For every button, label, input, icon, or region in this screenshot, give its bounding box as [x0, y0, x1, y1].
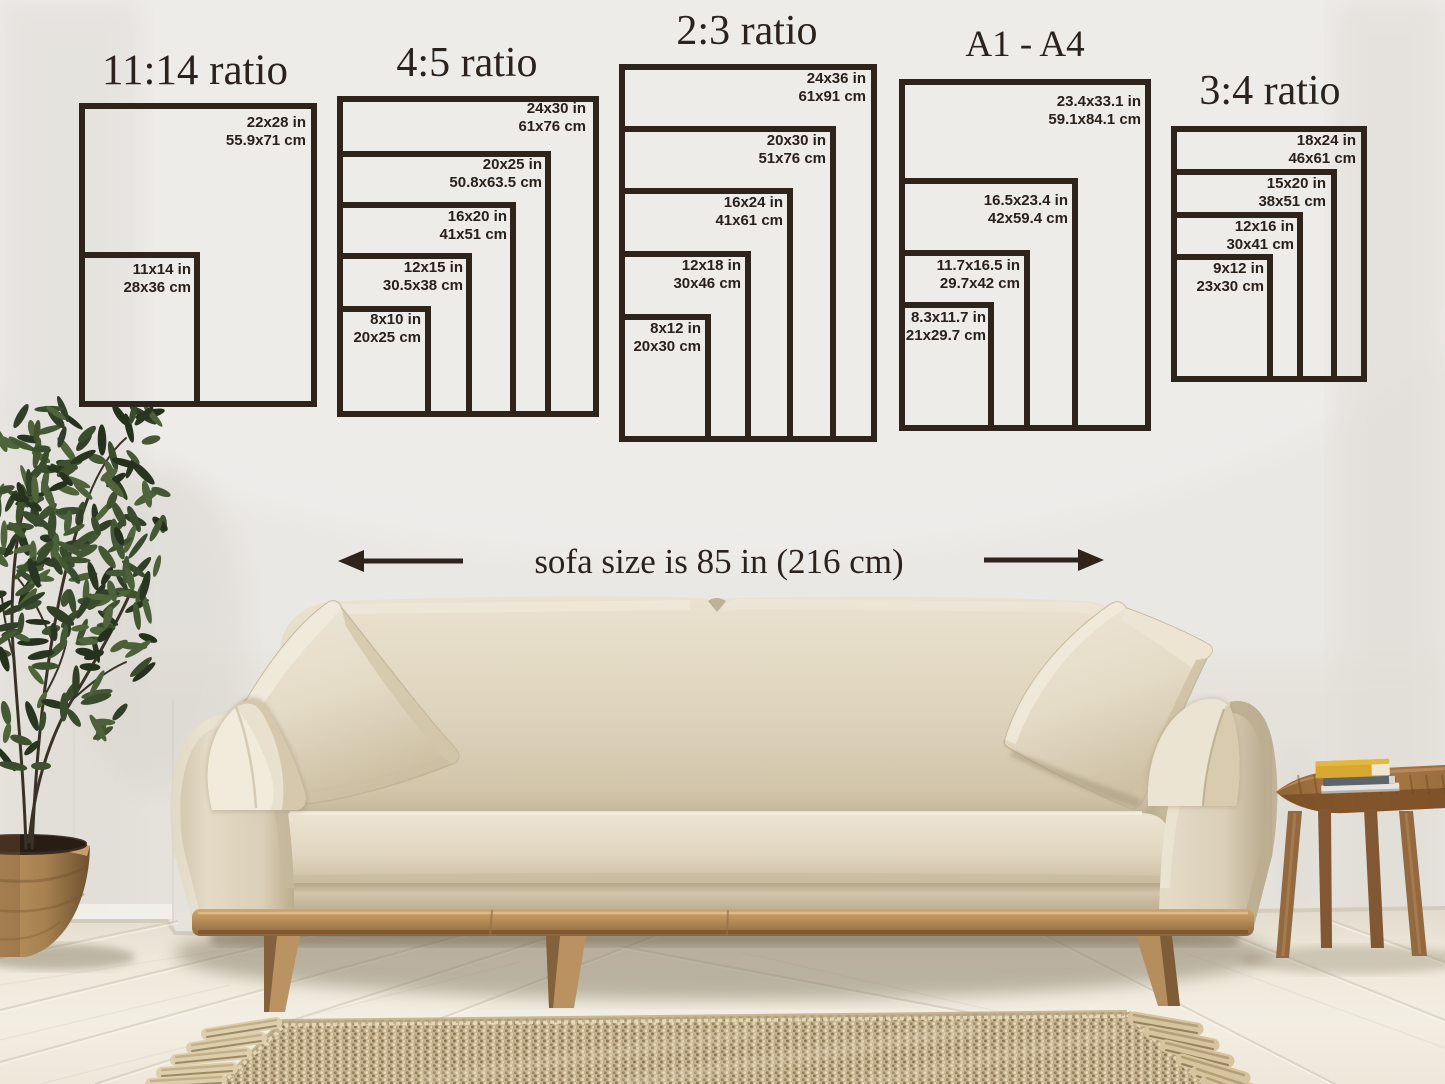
svg-text:11.7x16.5 in29.7x42 cm: 11.7x16.5 in29.7x42 cm [937, 257, 1020, 292]
svg-text:23.4x33.1 in59.1x84.1 cm: 23.4x33.1 in59.1x84.1 cm [1048, 93, 1141, 128]
svg-text:18x24 in46x61 cm: 18x24 in46x61 cm [1288, 132, 1356, 167]
svg-text:sofa size is 85 in (216 cm): sofa size is 85 in (216 cm) [534, 542, 903, 581]
svg-text:12x18 in30x46 cm: 12x18 in30x46 cm [673, 257, 741, 292]
svg-text:12x16 in30x41 cm: 12x16 in30x41 cm [1226, 218, 1294, 253]
svg-text:16x24 in41x61 cm: 16x24 in41x61 cm [715, 194, 783, 229]
svg-text:2:3 ratio: 2:3 ratio [676, 8, 817, 54]
svg-text:15x20 in38x51 cm: 15x20 in38x51 cm [1258, 175, 1326, 210]
svg-text:11:14 ratio: 11:14 ratio [102, 47, 288, 94]
svg-text:16x20 in41x51 cm: 16x20 in41x51 cm [439, 208, 507, 243]
svg-text:24x36 in61x91 cm: 24x36 in61x91 cm [798, 70, 866, 105]
svg-text:16.5x23.4 in42x59.4 cm: 16.5x23.4 in42x59.4 cm [984, 192, 1068, 227]
svg-text:20x30 in51x76 cm: 20x30 in51x76 cm [758, 132, 826, 167]
svg-text:11x14 in28x36 cm: 11x14 in28x36 cm [123, 261, 191, 296]
svg-text:8.3x11.7 in21x29.7 cm: 8.3x11.7 in21x29.7 cm [906, 309, 986, 344]
svg-text:A1 - A4: A1 - A4 [965, 24, 1084, 65]
svg-text:3:4 ratio: 3:4 ratio [1199, 68, 1340, 114]
svg-text:4:5 ratio: 4:5 ratio [396, 40, 537, 86]
svg-text:24x30 in61x76 cm: 24x30 in61x76 cm [518, 100, 586, 135]
